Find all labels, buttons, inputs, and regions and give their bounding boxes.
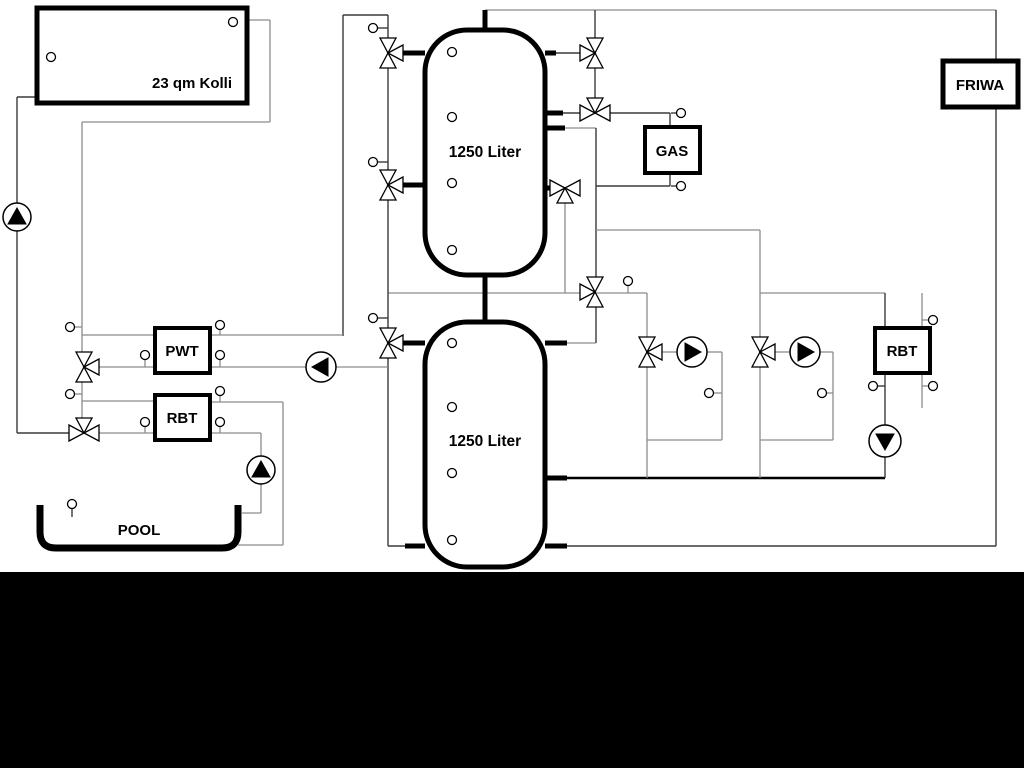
schematic-canvas: 23 qm Kolli 1250 Liter 1250 Liter GAS FR… xyxy=(0,0,1024,768)
temp-sensor-icon xyxy=(448,339,457,348)
temp-sensor-icon xyxy=(448,536,457,545)
temp-sensor-icon xyxy=(68,500,77,509)
gas-label: GAS xyxy=(656,143,689,160)
bottom-black-mask xyxy=(0,572,1024,768)
temp-sensor-icon xyxy=(141,418,150,427)
rbt-right-label: RBT xyxy=(887,343,918,360)
temp-sensor-icon xyxy=(47,53,56,62)
temp-sensor-icon xyxy=(448,113,457,122)
temp-sensor-icon xyxy=(448,179,457,188)
pump-icon xyxy=(790,337,820,367)
pwt-label: PWT xyxy=(165,343,198,360)
temp-sensor-icon xyxy=(369,314,378,323)
pool-label: POOL xyxy=(118,522,161,539)
temp-sensor-icon xyxy=(229,18,238,27)
rbt-left-label: RBT xyxy=(167,410,198,427)
temp-sensor-icon xyxy=(677,182,686,191)
temp-sensor-icon xyxy=(929,382,938,391)
three-way-valve-icon xyxy=(380,38,403,68)
three-way-valve-icon xyxy=(580,98,610,121)
temp-sensor-icon xyxy=(216,321,225,330)
temp-sensor-icon xyxy=(66,323,75,332)
temp-sensor-icon xyxy=(677,109,686,118)
three-way-valve-icon xyxy=(76,352,99,382)
tank-bottom-label: 1250 Liter xyxy=(449,433,521,450)
temp-sensor-icon xyxy=(216,418,225,427)
pump-icon xyxy=(869,425,901,457)
temp-sensor-icon xyxy=(448,48,457,57)
temp-sensor-icon xyxy=(216,387,225,396)
temp-sensor-icon xyxy=(869,382,878,391)
pump-icon xyxy=(3,203,31,231)
pump-icon xyxy=(247,456,275,484)
temp-sensor-icon xyxy=(624,277,633,286)
temp-sensor-icon xyxy=(818,389,827,398)
temp-sensor-icon xyxy=(448,469,457,478)
pump-icon xyxy=(306,352,336,382)
tank-top-label: 1250 Liter xyxy=(449,144,521,161)
pump-icon xyxy=(677,337,707,367)
three-way-valve-icon xyxy=(639,337,662,367)
temp-sensor-icon xyxy=(141,351,150,360)
temp-sensor-icon xyxy=(448,403,457,412)
three-way-valve-icon xyxy=(380,328,403,358)
temp-sensor-icon xyxy=(369,24,378,33)
temp-sensor-icon xyxy=(929,316,938,325)
temp-sensor-icon xyxy=(216,351,225,360)
temp-sensor-icon xyxy=(66,390,75,399)
temp-sensor-icon xyxy=(448,246,457,255)
temp-sensor-icon xyxy=(705,389,714,398)
three-way-valve-icon xyxy=(550,180,580,203)
three-way-valve-icon xyxy=(380,170,403,200)
friwa-label: FRIWA xyxy=(956,77,1004,94)
collector-label: 23 qm Kolli xyxy=(152,75,232,92)
temp-sensor-icon xyxy=(369,158,378,167)
three-way-valve-icon xyxy=(580,38,603,68)
three-way-valve-icon xyxy=(580,277,603,307)
hydraulic-schematic: 23 qm Kolli 1250 Liter 1250 Liter GAS FR… xyxy=(0,0,1024,768)
three-way-valve-icon xyxy=(69,418,99,441)
three-way-valve-icon xyxy=(752,337,775,367)
